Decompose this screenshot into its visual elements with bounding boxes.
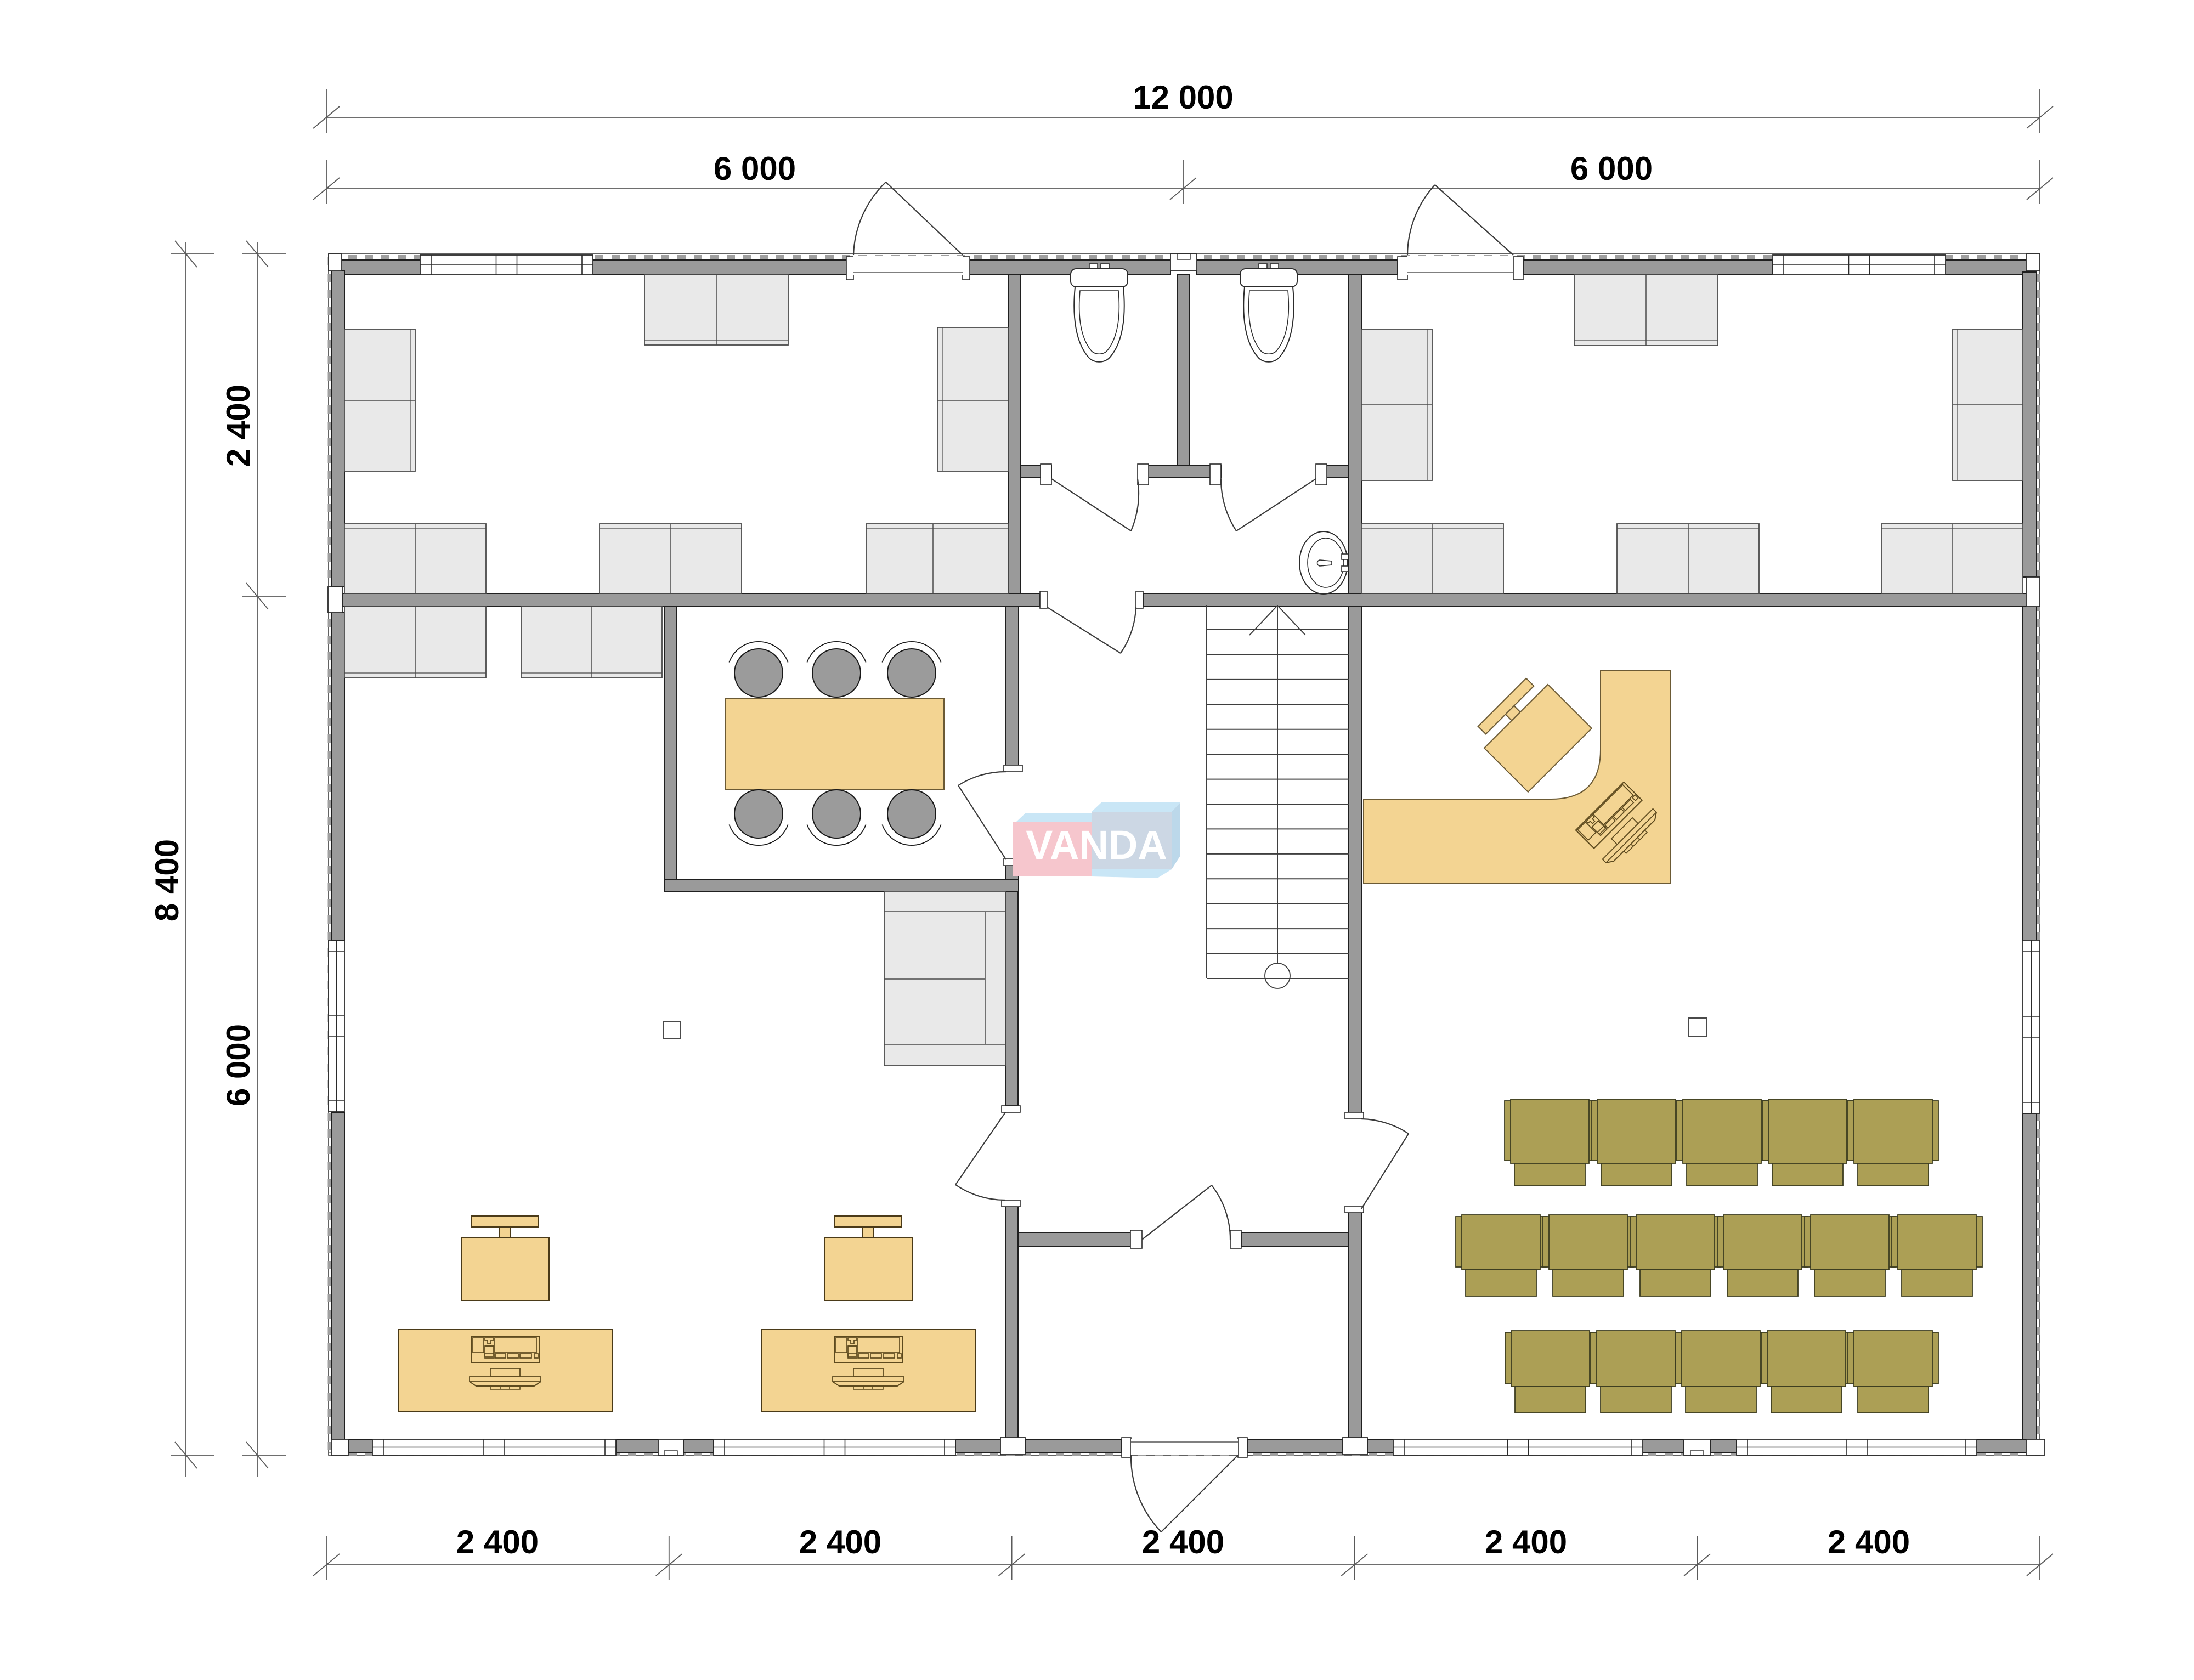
svg-text:6 000: 6 000 xyxy=(714,150,796,187)
svg-text:6 000: 6 000 xyxy=(220,1024,257,1106)
svg-text:2 400: 2 400 xyxy=(1142,1524,1224,1560)
svg-text:8 400: 8 400 xyxy=(149,839,185,921)
svg-text:2 400: 2 400 xyxy=(220,384,257,467)
svg-text:2 400: 2 400 xyxy=(1828,1524,1910,1560)
svg-text:2 400: 2 400 xyxy=(799,1524,881,1560)
svg-text:2 400: 2 400 xyxy=(1485,1524,1567,1560)
svg-text:2 400: 2 400 xyxy=(456,1524,539,1560)
svg-text:VANDA: VANDA xyxy=(1026,822,1167,868)
svg-text:6 000: 6 000 xyxy=(1570,150,1653,187)
svg-text:12 000: 12 000 xyxy=(1133,79,1234,116)
